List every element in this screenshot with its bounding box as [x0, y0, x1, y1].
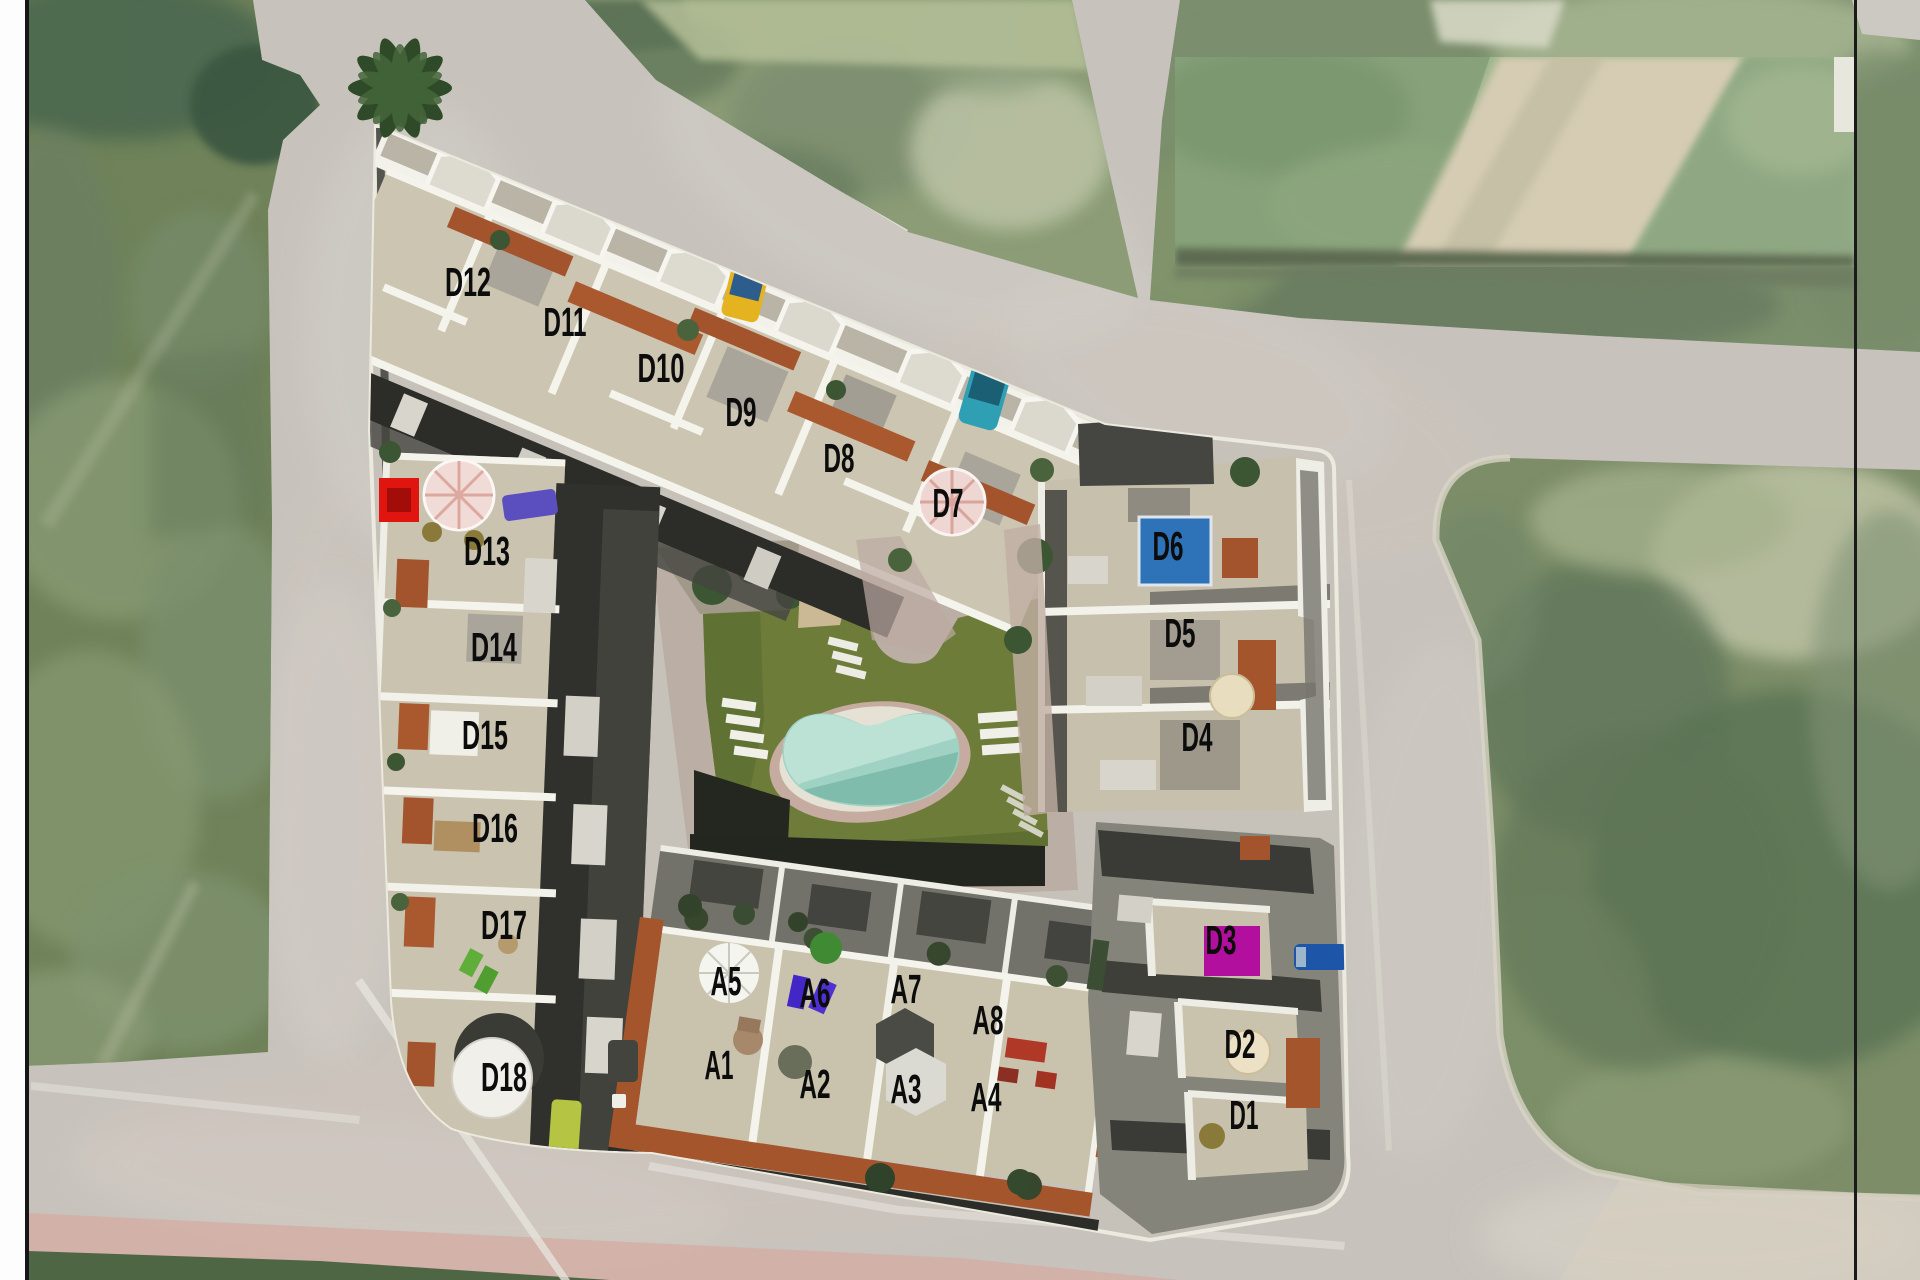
svg-text:A3: A3 [891, 1066, 922, 1112]
svg-text:D11: D11 [544, 299, 587, 345]
svg-text:A8: A8 [973, 997, 1004, 1043]
svg-text:D8: D8 [824, 435, 855, 481]
svg-text:D6: D6 [1153, 523, 1184, 569]
svg-text:D17: D17 [481, 902, 527, 948]
svg-text:A2: A2 [800, 1061, 831, 1107]
svg-text:A6: A6 [800, 970, 831, 1016]
svg-text:D9: D9 [726, 389, 757, 435]
svg-text:D16: D16 [472, 805, 518, 851]
svg-text:D2: D2 [1225, 1021, 1256, 1067]
svg-text:D18: D18 [481, 1054, 527, 1100]
svg-text:D5: D5 [1165, 610, 1196, 656]
svg-text:A4: A4 [971, 1074, 1002, 1120]
svg-text:D3: D3 [1206, 917, 1237, 963]
svg-text:A1: A1 [705, 1042, 734, 1088]
svg-text:A5: A5 [711, 958, 742, 1004]
svg-text:D10: D10 [638, 345, 685, 391]
svg-text:D4: D4 [1182, 714, 1213, 760]
svg-text:A7: A7 [891, 966, 922, 1012]
svg-text:D13: D13 [464, 528, 510, 574]
svg-text:D1: D1 [1230, 1092, 1259, 1138]
svg-text:D7: D7 [933, 480, 964, 526]
svg-text:D14: D14 [471, 624, 517, 670]
svg-text:D12: D12 [445, 259, 491, 305]
svg-text:D15: D15 [462, 712, 508, 758]
